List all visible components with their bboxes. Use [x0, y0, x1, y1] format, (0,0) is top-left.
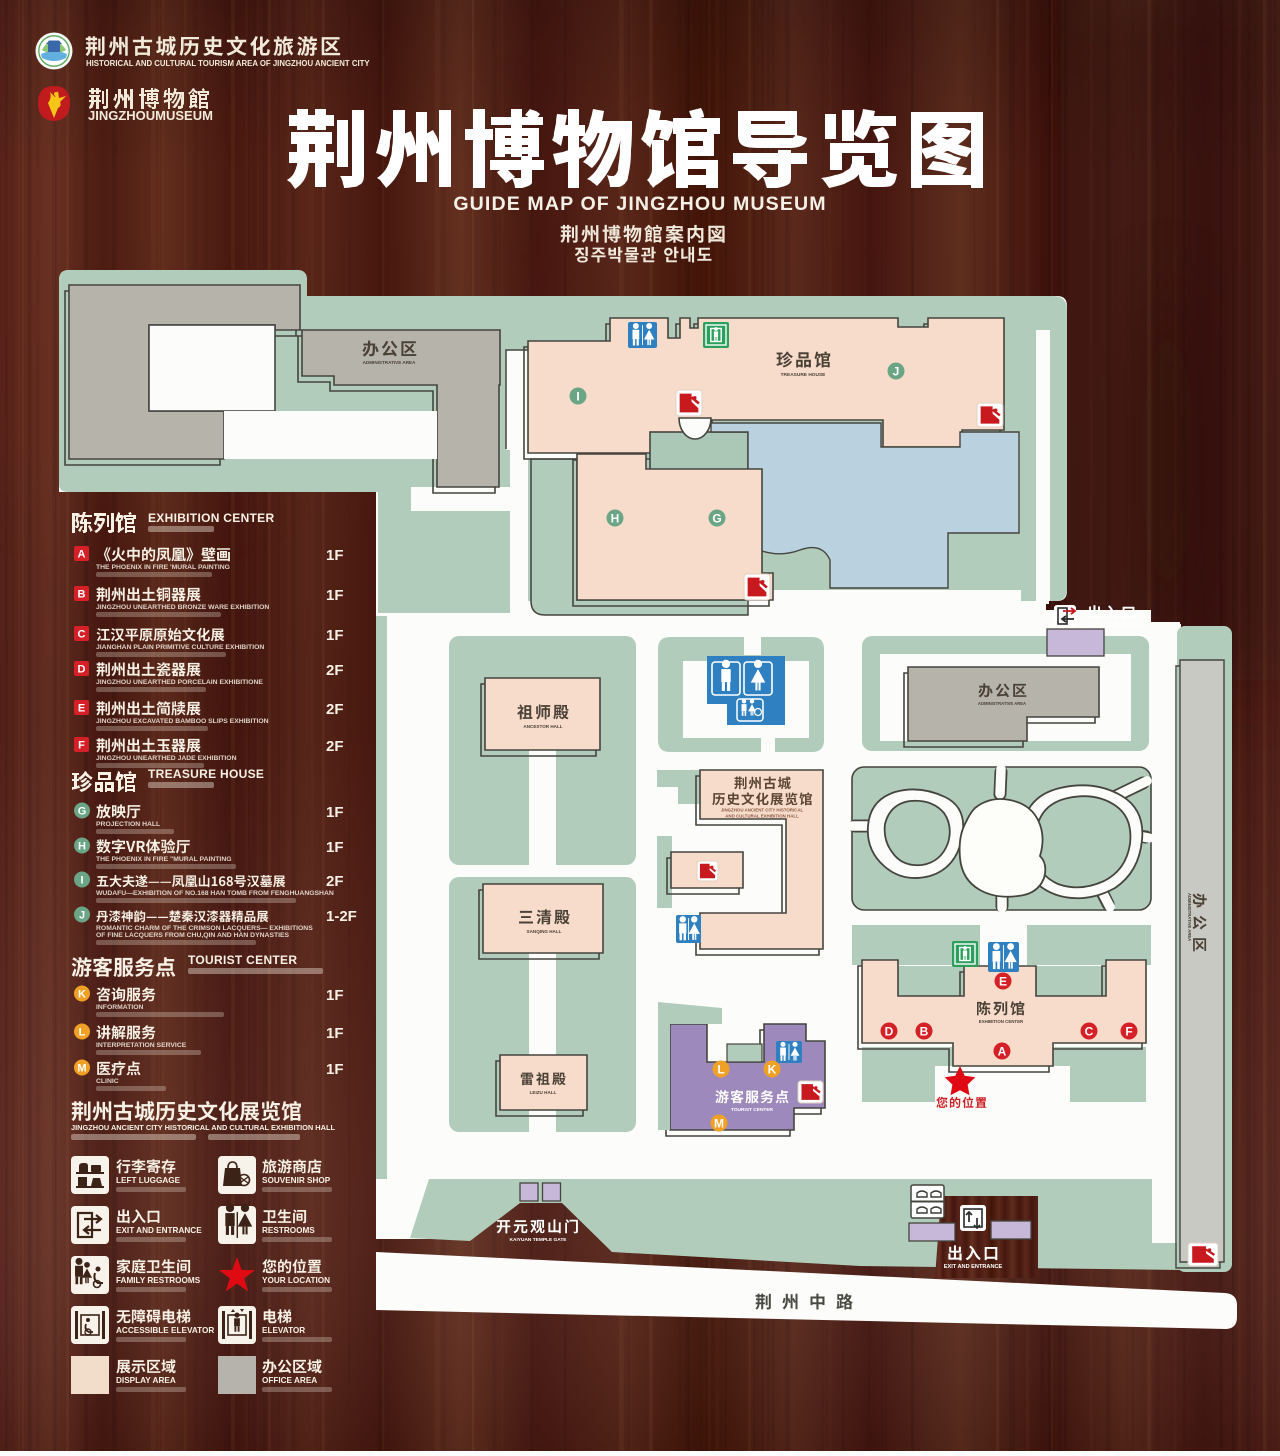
svg-text:1-2F: 1-2F [326, 908, 357, 925]
svg-text:D: D [885, 1024, 894, 1038]
svg-text:EXIT AND ENTRANCE: EXIT AND ENTRANCE [116, 1226, 202, 1235]
svg-text:1F: 1F [326, 1061, 344, 1078]
svg-text:GUIDE MAP OF JINGZHOU MUSEUM: GUIDE MAP OF JINGZHOU MUSEUM [453, 193, 826, 215]
svg-text:LEIZU HALL: LEIZU HALL [530, 1090, 557, 1095]
svg-text:1F: 1F [326, 987, 344, 1004]
svg-text:H: H [611, 511, 620, 525]
svg-text:2F: 2F [326, 662, 344, 679]
svg-text:OFFICE AREA: OFFICE AREA [262, 1376, 317, 1385]
svg-text:KAIYUAN TEMPLE GATE: KAIYUAN TEMPLE GATE [510, 1237, 568, 1243]
svg-text:JIANGHAN PLAIN PRIMITIVE CULTU: JIANGHAN PLAIN PRIMITIVE CULTURE EXHIBIT… [96, 644, 264, 651]
svg-text:L: L [79, 1026, 86, 1038]
svg-text:THE PHOENIX IN FIRE 'MURAL PAI: THE PHOENIX IN FIRE 'MURAL PAINTING [96, 564, 230, 571]
svg-text:ADMINISTRATIVE AREA: ADMINISTRATIVE AREA [363, 360, 417, 365]
svg-text:A: A [998, 1044, 1007, 1058]
svg-text:TREASURE HOUSE: TREASURE HOUSE [148, 767, 264, 781]
svg-text:F: F [1125, 1024, 1132, 1038]
svg-text:SANQING HALL: SANQING HALL [527, 929, 562, 934]
svg-text:1F: 1F [326, 587, 344, 604]
svg-text:1F: 1F [326, 547, 344, 564]
svg-text:TOURIST CENTER: TOURIST CENTER [188, 953, 297, 967]
svg-text:JINGZHOU ANCIENT CITY HISTORIC: JINGZHOU ANCIENT CITY HISTORICAL [721, 808, 804, 813]
svg-text:B: B [78, 589, 86, 601]
svg-text:EXIT AND ENTRANCE: EXIT AND ENTRANCE [1087, 623, 1144, 629]
svg-text:C: C [78, 629, 86, 641]
svg-text:JINGZHOU EXCAVATED BAMBOO SLIP: JINGZHOU EXCAVATED BAMBOO SLIPS EXHIBITI… [96, 718, 269, 725]
svg-text:RESTROOMS: RESTROOMS [262, 1226, 315, 1235]
svg-text:E: E [999, 974, 1007, 988]
svg-text:ROMANTIC CHARM OF THE CRIMSON: ROMANTIC CHARM OF THE CRIMSON LACQUERS— … [96, 925, 313, 932]
svg-text:SOUVENIR SHOP: SOUVENIR SHOP [262, 1176, 331, 1185]
svg-text:K: K [768, 1062, 777, 1076]
svg-text:JINGZHOU ANCIENT CITY HISTORIC: JINGZHOU ANCIENT CITY HISTORICAL AND CUL… [71, 1123, 335, 1132]
svg-text:TREASURE HOUSE: TREASURE HOUSE [781, 372, 827, 378]
svg-text:E: E [78, 703, 85, 715]
svg-text:LEFT LUGGAGE: LEFT LUGGAGE [116, 1176, 181, 1185]
svg-text:B: B [920, 1024, 929, 1038]
svg-text:1F: 1F [326, 804, 344, 821]
svg-text:JINGZHOU UNEARTHED BRONZE WARE: JINGZHOU UNEARTHED BRONZE WARE EXHIBITIO… [96, 604, 269, 611]
svg-text:G: G [712, 511, 721, 525]
svg-text:AND CULTURAL EXHIBITION HALL: AND CULTURAL EXHIBITION HALL [725, 814, 799, 819]
svg-text:DISPLAY AREA: DISPLAY AREA [116, 1376, 176, 1385]
svg-text:ADMINISTRATIVE AREA: ADMINISTRATIVE AREA [1187, 893, 1192, 941]
svg-text:2F: 2F [326, 738, 344, 755]
svg-text:PROJECTION HALL: PROJECTION HALL [96, 821, 160, 828]
svg-text:EXHIBITION CENTER: EXHIBITION CENTER [979, 1019, 1024, 1024]
svg-text:THE PHOENIX IN FIRE "MURAL PAI: THE PHOENIX IN FIRE "MURAL PAINTING [96, 856, 232, 863]
svg-text:HISTORICAL AND CULTURAL TOURIS: HISTORICAL AND CULTURAL TOURISM AREA OF … [86, 59, 370, 68]
svg-text:2F: 2F [326, 873, 344, 890]
svg-text:D: D [78, 664, 86, 676]
svg-text:ANCESTOR HALL: ANCESTOR HALL [523, 724, 562, 729]
svg-text:1F: 1F [326, 627, 344, 644]
svg-text:K: K [78, 988, 86, 1000]
svg-text:FAMILY RESTROOMS: FAMILY RESTROOMS [116, 1276, 201, 1285]
svg-text:L: L [717, 1062, 724, 1076]
svg-text:M: M [714, 1116, 724, 1130]
svg-text:J: J [893, 364, 900, 378]
svg-text:C: C [1085, 1024, 1094, 1038]
svg-text:F: F [78, 740, 85, 752]
svg-text:OF FINE LACQUERS FROM CHU,QIN: OF FINE LACQUERS FROM CHU,QIN AND HAN DY… [96, 932, 290, 939]
svg-text:2F: 2F [326, 701, 344, 718]
svg-text:ACCESSIBLE ELEVATOR: ACCESSIBLE ELEVATOR [116, 1326, 214, 1335]
svg-text:YOUR LOCATION: YOUR LOCATION [262, 1276, 330, 1285]
svg-text:ADMINISTRATIVE AREA: ADMINISTRATIVE AREA [978, 701, 1026, 706]
svg-text:JINGZHOU UNEARTHED JADE EXHIBI: JINGZHOU UNEARTHED JADE EXHIBITION [96, 755, 237, 762]
svg-text:I: I [80, 874, 83, 886]
svg-text:I: I [576, 389, 579, 403]
svg-text:A: A [78, 549, 86, 561]
svg-text:WUDAFU—EXHIBITION OF NO.168 HA: WUDAFU—EXHIBITION OF NO.168 HAN TOMB FRO… [96, 890, 334, 897]
svg-text:CLINIC: CLINIC [96, 1078, 119, 1085]
svg-text:INTERPRETATION SERVICE: INTERPRETATION SERVICE [96, 1042, 187, 1049]
svg-text:TOURIST CENTER: TOURIST CENTER [731, 1107, 774, 1113]
svg-text:EXHIBITION CENTER: EXHIBITION CENTER [148, 511, 274, 525]
svg-text:JINGZHOU UNEARTHED PORCELAIN E: JINGZHOU UNEARTHED PORCELAIN EXHIBITIONE [96, 679, 263, 686]
svg-text:1F: 1F [326, 1025, 344, 1042]
svg-text:EXIT AND ENTRANCE: EXIT AND ENTRANCE [944, 1264, 1003, 1270]
svg-text:H: H [78, 840, 86, 852]
svg-text:M: M [77, 1062, 86, 1074]
svg-text:J: J [79, 909, 85, 921]
svg-text:INFORMATION: INFORMATION [96, 1004, 144, 1011]
svg-text:ELEVATOR: ELEVATOR [262, 1326, 305, 1335]
svg-text:JINGZHOUMUSEUM: JINGZHOUMUSEUM [88, 108, 213, 123]
svg-text:G: G [78, 805, 87, 817]
svg-text:1F: 1F [326, 839, 344, 856]
